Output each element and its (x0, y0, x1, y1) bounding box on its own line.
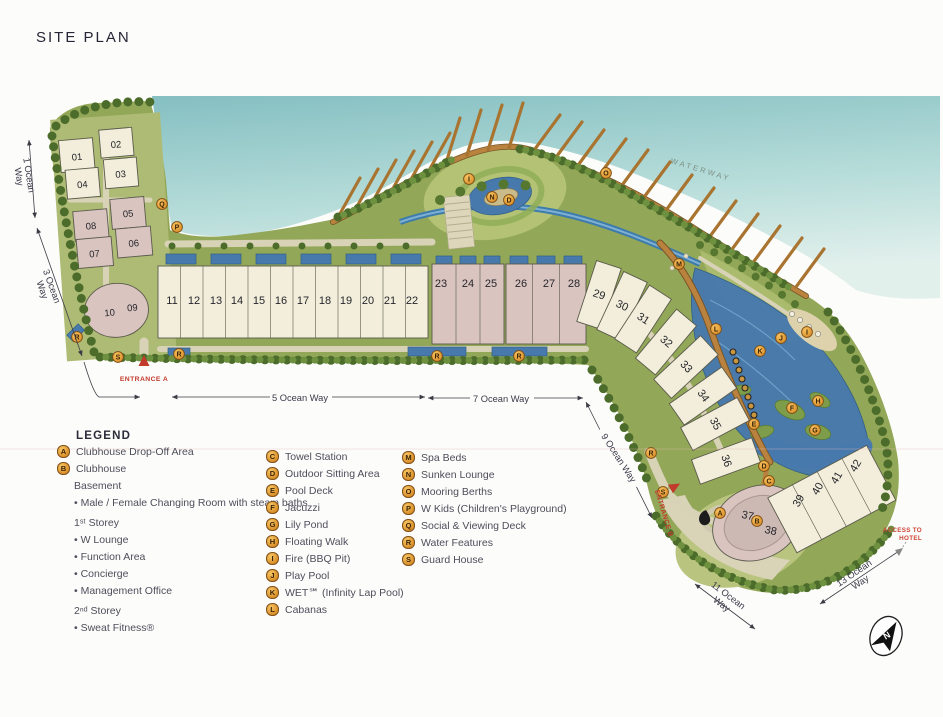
north-arrow: N (865, 612, 908, 660)
legend-marker-f: F (266, 501, 279, 514)
map-marker: S (113, 352, 124, 363)
building-number: 11 (166, 295, 177, 307)
building-number: 23 (435, 278, 447, 290)
svg-text:I: I (806, 330, 808, 337)
legend-item: DOutdoor Sitting Area (266, 465, 401, 482)
map-marker: R (432, 351, 443, 362)
svg-text:ACCESS TO: ACCESS TO (883, 527, 922, 534)
legend-marker-c: C (266, 450, 279, 463)
map-marker: M (674, 259, 685, 270)
map-marker: D (504, 195, 515, 206)
svg-text:D: D (761, 464, 766, 471)
cabana (789, 311, 794, 316)
building-number: 10 (104, 307, 115, 319)
svg-text:N: N (489, 195, 494, 202)
legend-marker-j: J (266, 569, 279, 582)
building-number: 24 (462, 278, 474, 290)
map-marker: J (776, 333, 787, 344)
map-marker: R (174, 349, 185, 360)
svg-text:M: M (676, 262, 682, 269)
street-label: Way (13, 167, 26, 187)
legend-item: GLily Pond (266, 516, 401, 533)
legend-column-3: MSpa Beds NSunken Lounge OMooring Berths… (402, 449, 567, 568)
legend-item: PW Kids (Children's Playground) (402, 500, 567, 517)
mid-buildings: 23 24 25 26 27 28 (432, 264, 586, 344)
legend-item: A Clubhouse Drop-Off Area (57, 443, 297, 460)
svg-text:A: A (717, 511, 722, 518)
building-number: 07 (89, 249, 100, 261)
legend-marker-p: P (402, 502, 415, 515)
map-marker: N (487, 192, 498, 203)
svg-text:O: O (603, 171, 609, 178)
building-number: 14 (231, 295, 243, 307)
building-number: 12 (188, 295, 200, 307)
building-number: 04 (77, 179, 88, 191)
legend-section-storey2: 2ⁿᵈ Storey (57, 602, 297, 619)
map-marker: I (464, 174, 475, 185)
street-label: 5 Ocean Way (272, 393, 328, 403)
building-number: 18 (319, 295, 331, 307)
legend-marker-h: H (266, 535, 279, 548)
building-number: 13 (210, 295, 222, 307)
map-marker: F (787, 403, 798, 414)
legend-marker-r: R (402, 536, 415, 549)
building-number: 21 (384, 295, 396, 307)
building-number: 03 (115, 169, 126, 181)
legend-marker-l: L (266, 603, 279, 616)
legend-bullet-item: Management Office (57, 582, 297, 599)
legend-item: B Clubhouse (57, 460, 297, 477)
building-number: 05 (122, 209, 133, 221)
legend-section-basement: Basement (57, 477, 297, 494)
map-marker: L (711, 324, 722, 335)
svg-text:J: J (779, 336, 783, 343)
legend-item: OMooring Berths (402, 483, 567, 500)
map-marker: I (802, 327, 813, 338)
building-number: 15 (253, 295, 265, 307)
legend-marker-m: M (402, 451, 415, 464)
legend-item: SGuard House (402, 551, 567, 568)
legend-item: NSunken Lounge (402, 466, 567, 483)
building-number: 16 (275, 295, 287, 307)
map-marker: H (813, 396, 824, 407)
map-marker: B (752, 516, 763, 527)
legend-item: HFloating Walk (266, 533, 401, 550)
map-marker: R (514, 351, 525, 362)
legend-marker-o: O (402, 485, 415, 498)
building-number: 08 (85, 221, 96, 233)
map-marker: E (749, 419, 760, 430)
legend-marker-s: S (402, 553, 415, 566)
svg-text:B: B (754, 519, 759, 526)
building-number: 01 (71, 152, 82, 164)
street-label: 7 Ocean Way (473, 394, 529, 404)
svg-text:G: G (812, 428, 818, 435)
cabana (815, 331, 820, 336)
legend-marker-e: E (266, 484, 279, 497)
legend-bullet-item: Concierge (57, 565, 297, 582)
legend-heading: LEGEND (76, 430, 131, 442)
map-marker: D (759, 461, 770, 472)
building-number: 17 (297, 295, 309, 307)
legend-item: FJacuzzi (266, 499, 401, 516)
building-number: 38 (763, 524, 777, 538)
building-number: 09 (127, 302, 138, 314)
svg-text:E: E (752, 422, 757, 429)
legend-item: EPool Deck (266, 482, 401, 499)
building-number: 28 (568, 278, 580, 290)
cabana (797, 317, 802, 322)
row-buildings: 11 12 13 14 15 16 17 18 19 20 21 22 (158, 266, 428, 338)
map-marker: C (764, 476, 775, 487)
legend-item: RWater Features (402, 534, 567, 551)
building-number: 06 (128, 238, 139, 250)
legend-item: JPlay Pool (266, 567, 401, 584)
svg-text:H: H (815, 399, 820, 406)
legend-section-storey1: 1ˢᵗ Storey (57, 514, 297, 531)
map-marker: G (810, 425, 821, 436)
svg-text:I: I (468, 177, 470, 184)
entrance-a-label: ENTRANCE A (120, 376, 168, 383)
legend-item: CTowel Station (266, 448, 401, 465)
building-number: 02 (110, 139, 121, 151)
map-marker: P (172, 222, 183, 233)
steps-plaza (443, 195, 474, 249)
legend-marker-q: Q (402, 519, 415, 532)
svg-text:P: P (175, 225, 180, 232)
legend-bullet-item: Male / Female Changing Room with steam b… (57, 494, 297, 511)
building-number: 19 (340, 295, 352, 307)
legend-marker-i: I (266, 552, 279, 565)
legend-bullet-item: Sweat Fitness® (57, 619, 297, 636)
svg-text:R: R (648, 451, 653, 458)
legend-item-label: Clubhouse (76, 463, 126, 475)
svg-text:D: D (506, 198, 511, 205)
svg-text:R: R (176, 352, 181, 359)
building-number: 22 (406, 295, 418, 307)
legend-marker-k: K (266, 586, 279, 599)
site-plan-page: SITE PLAN (0, 0, 943, 717)
legend-item: LCabanas (266, 601, 401, 618)
legend-item: MSpa Beds (402, 449, 567, 466)
map-marker: Q (157, 199, 168, 210)
legend-bullet-item: Function Area (57, 548, 297, 565)
svg-text:Q: Q (159, 202, 165, 209)
svg-text:S: S (116, 355, 121, 362)
legend-marker-g: G (266, 518, 279, 531)
building-number: 27 (543, 278, 555, 290)
legend-item: KWET℠ (Infinity Lap Pool) (266, 584, 401, 601)
map-marker: A (715, 508, 726, 519)
legend-item: IFire (BBQ Pit) (266, 550, 401, 567)
building-number: 26 (515, 278, 527, 290)
map-marker: O (601, 168, 612, 179)
legend-marker-n: N (402, 468, 415, 481)
svg-text:HOTEL: HOTEL (899, 535, 922, 542)
legend-marker-a: A (57, 445, 70, 458)
svg-text:L: L (714, 327, 719, 334)
svg-text:R: R (434, 354, 439, 361)
svg-text:R: R (516, 354, 521, 361)
building-number: 20 (362, 295, 374, 307)
legend-bullet-item: W Lounge (57, 531, 297, 548)
legend-item: QSocial & Viewing Deck (402, 517, 567, 534)
svg-text:K: K (757, 349, 762, 356)
legend-column-2: CTowel Station DOutdoor Sitting Area EPo… (266, 448, 401, 618)
legend-item-label: Clubhouse Drop-Off Area (76, 446, 194, 458)
building-number: 25 (485, 278, 497, 290)
legend-marker-b: B (57, 462, 70, 475)
legend-marker-d: D (266, 467, 279, 480)
map-marker: K (755, 346, 766, 357)
legend-column-1: A Clubhouse Drop-Off Area B Clubhouse Ba… (57, 443, 297, 636)
svg-text:C: C (766, 479, 771, 486)
svg-text:F: F (790, 406, 795, 413)
